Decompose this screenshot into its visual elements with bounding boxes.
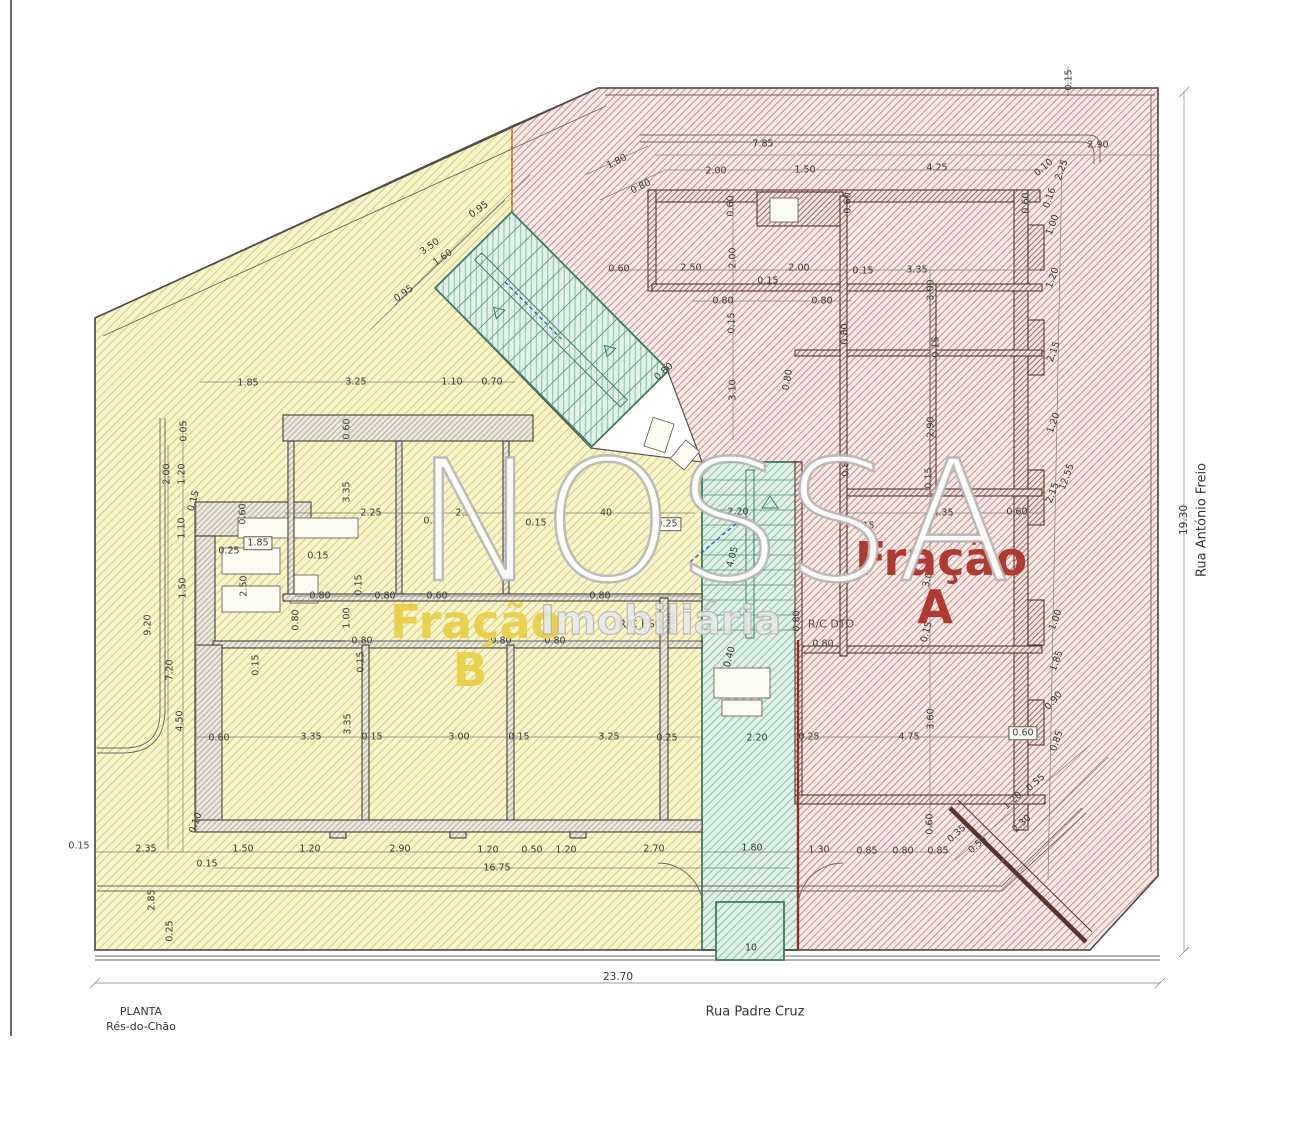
entrance-porch bbox=[716, 902, 784, 960]
drawing-type: PLANTA bbox=[106, 1005, 176, 1020]
overall-height-dimension: 19.30 bbox=[1178, 505, 1190, 535]
street-name-right: Rua António Freio bbox=[1195, 463, 1210, 577]
overall-width-dimension: 23.70 bbox=[603, 971, 633, 983]
unit-label-rc-dto: R/C DTO bbox=[808, 618, 854, 631]
floorplan: 7.852.901.800.802.001.504.250.100.152.25… bbox=[0, 0, 1290, 1139]
unit-label-rc-esq: R/C ESQ bbox=[618, 618, 663, 631]
drawing-title-block: PLANTA Rés-do-Chão bbox=[106, 1005, 176, 1035]
drawing-floor: Rés-do-Chão bbox=[106, 1020, 176, 1035]
street-name-bottom: Rua Padre Cruz bbox=[706, 1005, 805, 1020]
floorplan-drawing bbox=[0, 0, 1290, 1139]
